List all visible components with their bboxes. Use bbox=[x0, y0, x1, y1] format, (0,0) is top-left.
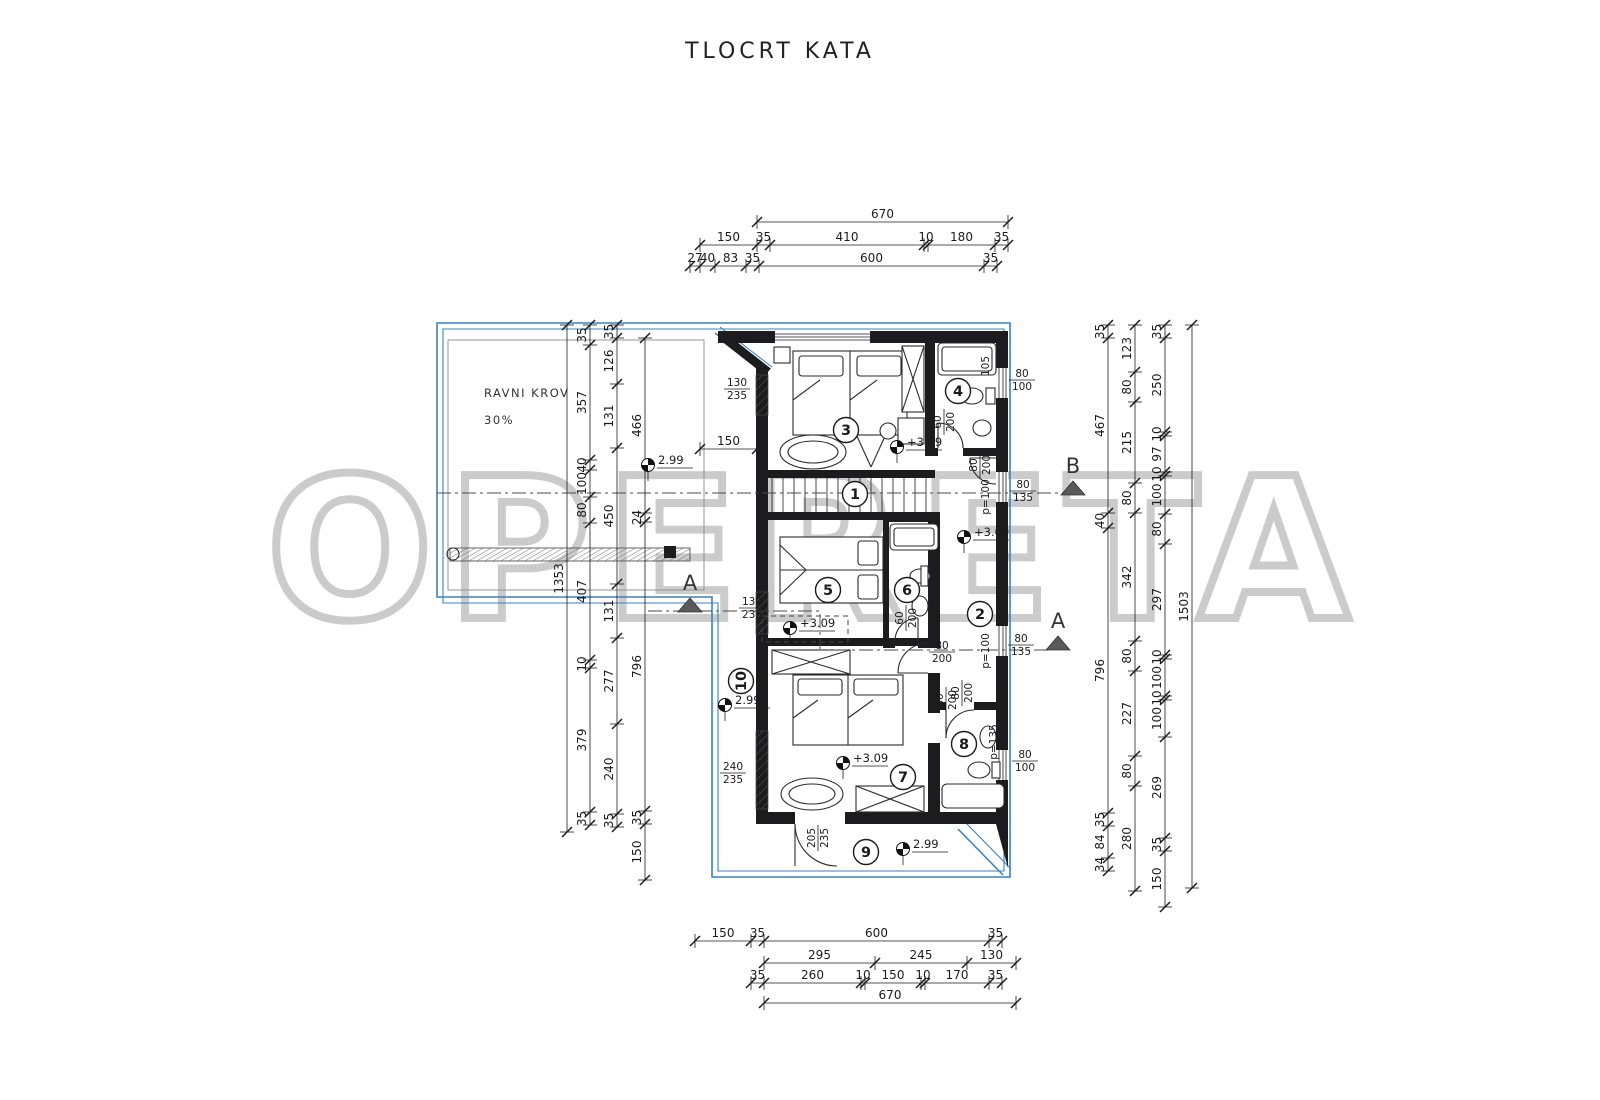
svg-text:240: 240 bbox=[723, 761, 743, 773]
dim-label: 407 bbox=[575, 580, 589, 603]
dim-label: 280 bbox=[1120, 827, 1134, 850]
dim-label: 450 bbox=[602, 505, 616, 528]
dim-label: 600 bbox=[865, 926, 888, 940]
dim-label: 379 bbox=[575, 729, 589, 752]
dim-label: 126 bbox=[602, 350, 616, 373]
svg-text:235: 235 bbox=[742, 609, 762, 621]
svg-text:235: 235 bbox=[819, 828, 831, 848]
annotation-label: p=100 bbox=[980, 633, 992, 669]
level-value: +3.09 bbox=[800, 616, 835, 630]
dim-label: 84 bbox=[1093, 834, 1107, 849]
dim-label: 35 bbox=[602, 324, 616, 339]
dim-label: 342 bbox=[1120, 566, 1134, 589]
svg-text:60: 60 bbox=[934, 693, 946, 706]
dim-label: 297 bbox=[1150, 588, 1164, 611]
dim-label: 1353 bbox=[552, 563, 566, 594]
dim-label: 100 bbox=[1150, 484, 1164, 507]
svg-text:100: 100 bbox=[1015, 762, 1035, 774]
chair-room3 bbox=[880, 423, 896, 439]
dim-label: 10 bbox=[575, 656, 589, 671]
dim-label: 35 bbox=[756, 230, 771, 244]
dim-label: 35 bbox=[1150, 837, 1164, 852]
dim-label: 35 bbox=[745, 251, 760, 265]
dim-label: 35 bbox=[988, 968, 1003, 982]
svg-text:200: 200 bbox=[963, 683, 975, 703]
dim-label: 357 bbox=[575, 391, 589, 414]
dim-label: 466 bbox=[630, 414, 644, 437]
room-number-2: 2 bbox=[975, 607, 985, 623]
dim-label: 35 bbox=[1093, 812, 1107, 827]
level-value: +3.09 bbox=[907, 435, 942, 449]
dim-label: 10 bbox=[855, 968, 870, 982]
level-marker-wedge bbox=[903, 843, 910, 850]
nightstand bbox=[774, 347, 790, 363]
dim-label: 796 bbox=[630, 655, 644, 678]
dim-label: 35 bbox=[630, 810, 644, 825]
svg-text:100: 100 bbox=[1012, 381, 1032, 393]
svg-text:200: 200 bbox=[907, 608, 919, 628]
dim-label: 670 bbox=[879, 988, 902, 1002]
roof-label: RAVNI KROV bbox=[484, 386, 569, 400]
dim-label: 35 bbox=[575, 811, 589, 826]
dim-label: 295 bbox=[808, 948, 831, 962]
dim-label: 100 bbox=[1150, 666, 1164, 689]
dim-label: 180 bbox=[950, 230, 973, 244]
dim-label: 150 bbox=[717, 434, 740, 448]
dim-label: 35 bbox=[994, 230, 1009, 244]
page-title: TLOCRT KATA bbox=[684, 39, 875, 64]
svg-text:80: 80 bbox=[935, 640, 948, 652]
window-hatched bbox=[756, 731, 768, 809]
level-marker-wedge bbox=[837, 763, 844, 770]
dim-label: 35 bbox=[602, 813, 616, 828]
dim-label: 1503 bbox=[1177, 591, 1191, 622]
dim-label: 34 bbox=[1093, 857, 1107, 872]
svg-text:130: 130 bbox=[727, 377, 747, 389]
dim-label: 10 bbox=[1150, 426, 1164, 441]
dim-label: 227 bbox=[1120, 702, 1134, 725]
dim-label: 269 bbox=[1150, 776, 1164, 799]
annotation-label: p=100 bbox=[980, 479, 992, 515]
svg-text:135: 135 bbox=[1013, 492, 1033, 504]
dim-label: 80 bbox=[1120, 648, 1134, 663]
floorplan-drawing: OPERETA TLOCRT KATA RAVNI KROV 30% bbox=[0, 0, 1600, 1100]
room-number-7: 7 bbox=[898, 770, 908, 786]
dim-label: 100 bbox=[575, 472, 589, 495]
annotation-label: p=135 bbox=[988, 724, 1000, 760]
room-number-4: 4 bbox=[953, 384, 963, 400]
svg-text:200: 200 bbox=[981, 455, 993, 475]
svg-text:80: 80 bbox=[968, 458, 980, 471]
svg-text:235: 235 bbox=[727, 390, 747, 402]
dim-label: 80 bbox=[1120, 763, 1134, 778]
room-number-9: 9 bbox=[861, 845, 871, 861]
svg-text:60: 60 bbox=[894, 611, 906, 624]
level-value: 2.99 bbox=[913, 837, 939, 851]
level-marker-wedge bbox=[725, 699, 732, 706]
dim-label: 123 bbox=[1120, 337, 1134, 360]
dim-label: 40 bbox=[575, 457, 589, 472]
dim-label: 97 bbox=[1150, 446, 1164, 461]
dim-label: 150 bbox=[717, 230, 740, 244]
dim-label: 40 bbox=[700, 251, 715, 265]
level-marker-wedge bbox=[897, 849, 904, 856]
level-value: 2.99 bbox=[735, 693, 761, 707]
svg-text:80: 80 bbox=[950, 686, 962, 699]
svg-text:200: 200 bbox=[945, 412, 957, 432]
annotation-label: 105 bbox=[980, 356, 992, 376]
dim-label: 80 bbox=[1120, 490, 1134, 505]
dim-label: 150 bbox=[712, 926, 735, 940]
bathtub-room3 bbox=[780, 435, 846, 469]
level-marker-wedge bbox=[843, 757, 850, 764]
svg-text:80: 80 bbox=[1016, 479, 1029, 491]
svg-text:200: 200 bbox=[932, 653, 952, 665]
level-value: +3.09 bbox=[853, 751, 888, 765]
level-value: +3.09 bbox=[974, 525, 1009, 539]
dim-label: 150 bbox=[1150, 868, 1164, 891]
dim-label: 40 bbox=[1093, 513, 1107, 528]
dim-label: 80 bbox=[575, 502, 589, 517]
opening-size-label: 130235 bbox=[739, 596, 765, 621]
room-number-6: 6 bbox=[902, 583, 912, 599]
dim-label: 24 bbox=[630, 510, 644, 525]
dim-label: 80 bbox=[1150, 521, 1164, 536]
dim-label: 130 bbox=[980, 948, 1003, 962]
svg-text:235: 235 bbox=[723, 774, 743, 786]
dim-label: 467 bbox=[1093, 414, 1107, 437]
room-number-8: 8 bbox=[959, 737, 969, 753]
dim-label: 10 bbox=[1150, 466, 1164, 481]
dim-label: 670 bbox=[871, 207, 894, 221]
dim-label: 796 bbox=[1093, 659, 1107, 682]
level-marker-wedge bbox=[719, 705, 726, 712]
roof-slope-label: 30% bbox=[484, 413, 514, 427]
window-hatched bbox=[756, 375, 768, 415]
svg-text:205: 205 bbox=[806, 828, 818, 848]
dim-label: 10 bbox=[918, 230, 933, 244]
dim-label: 150 bbox=[630, 841, 644, 864]
opening-size-label: 240235 bbox=[720, 761, 746, 786]
opening-size-label: 60200 bbox=[932, 409, 957, 435]
dim-label: 131 bbox=[602, 405, 616, 428]
room-number-5: 5 bbox=[823, 583, 833, 599]
svg-text:80: 80 bbox=[1015, 368, 1028, 380]
dim-label: 35 bbox=[988, 926, 1003, 940]
toilet-room8 bbox=[968, 762, 990, 778]
dim-label: 83 bbox=[723, 251, 738, 265]
dim-label: 150 bbox=[882, 968, 905, 982]
dim-label: 250 bbox=[1150, 374, 1164, 397]
room-number-1: 1 bbox=[850, 487, 860, 503]
washer-room8 bbox=[942, 784, 1004, 808]
opening-size-label: 80100 bbox=[1012, 749, 1038, 774]
dim-label: 35 bbox=[575, 327, 589, 342]
svg-text:60: 60 bbox=[932, 415, 944, 428]
dim-label: 35 bbox=[983, 251, 998, 265]
section-marker-a: A bbox=[1051, 609, 1066, 633]
floorplan-page: OPERETA TLOCRT KATA RAVNI KROV 30% bbox=[0, 0, 1600, 1100]
dim-label: 35 bbox=[1150, 324, 1164, 339]
svg-text:130: 130 bbox=[742, 596, 762, 608]
dim-label: 35 bbox=[750, 926, 765, 940]
dim-label: 215 bbox=[1120, 431, 1134, 454]
room-number-3: 3 bbox=[841, 423, 851, 439]
roof-wall-hatched bbox=[450, 548, 690, 561]
svg-text:135: 135 bbox=[1011, 646, 1031, 658]
dim-label: 10 bbox=[1150, 649, 1164, 664]
dim-label: 240 bbox=[602, 758, 616, 781]
section-marker-a: A bbox=[683, 571, 698, 595]
opening-size-label: 80100 bbox=[1009, 368, 1035, 393]
dim-label: 10 bbox=[915, 968, 930, 982]
svg-text:80: 80 bbox=[1018, 749, 1031, 761]
dim-label: 170 bbox=[946, 968, 969, 982]
svg-text:80: 80 bbox=[1014, 633, 1027, 645]
dim-label: 260 bbox=[801, 968, 824, 982]
dim-label: 80 bbox=[1120, 379, 1134, 394]
opening-size-label: 130235 bbox=[724, 377, 750, 402]
roof-column bbox=[664, 546, 676, 558]
dim-label: 131 bbox=[602, 600, 616, 623]
dim-label: 410 bbox=[836, 230, 859, 244]
dim-label: 100 bbox=[1150, 707, 1164, 730]
dim-label: 35 bbox=[750, 968, 765, 982]
dim-label: 245 bbox=[910, 948, 933, 962]
room-number-10: 10 bbox=[734, 671, 750, 691]
opening-size-label: 205235 bbox=[806, 825, 831, 851]
dim-label: 600 bbox=[860, 251, 883, 265]
level-value: 2.99 bbox=[658, 453, 684, 467]
dim-label: 277 bbox=[602, 670, 616, 693]
dim-label: 10 bbox=[1150, 690, 1164, 705]
dim-label: 35 bbox=[1093, 324, 1107, 339]
section-marker-b: B bbox=[1066, 454, 1080, 478]
bathtub-room7 bbox=[781, 778, 843, 810]
sink-room4 bbox=[973, 420, 991, 436]
